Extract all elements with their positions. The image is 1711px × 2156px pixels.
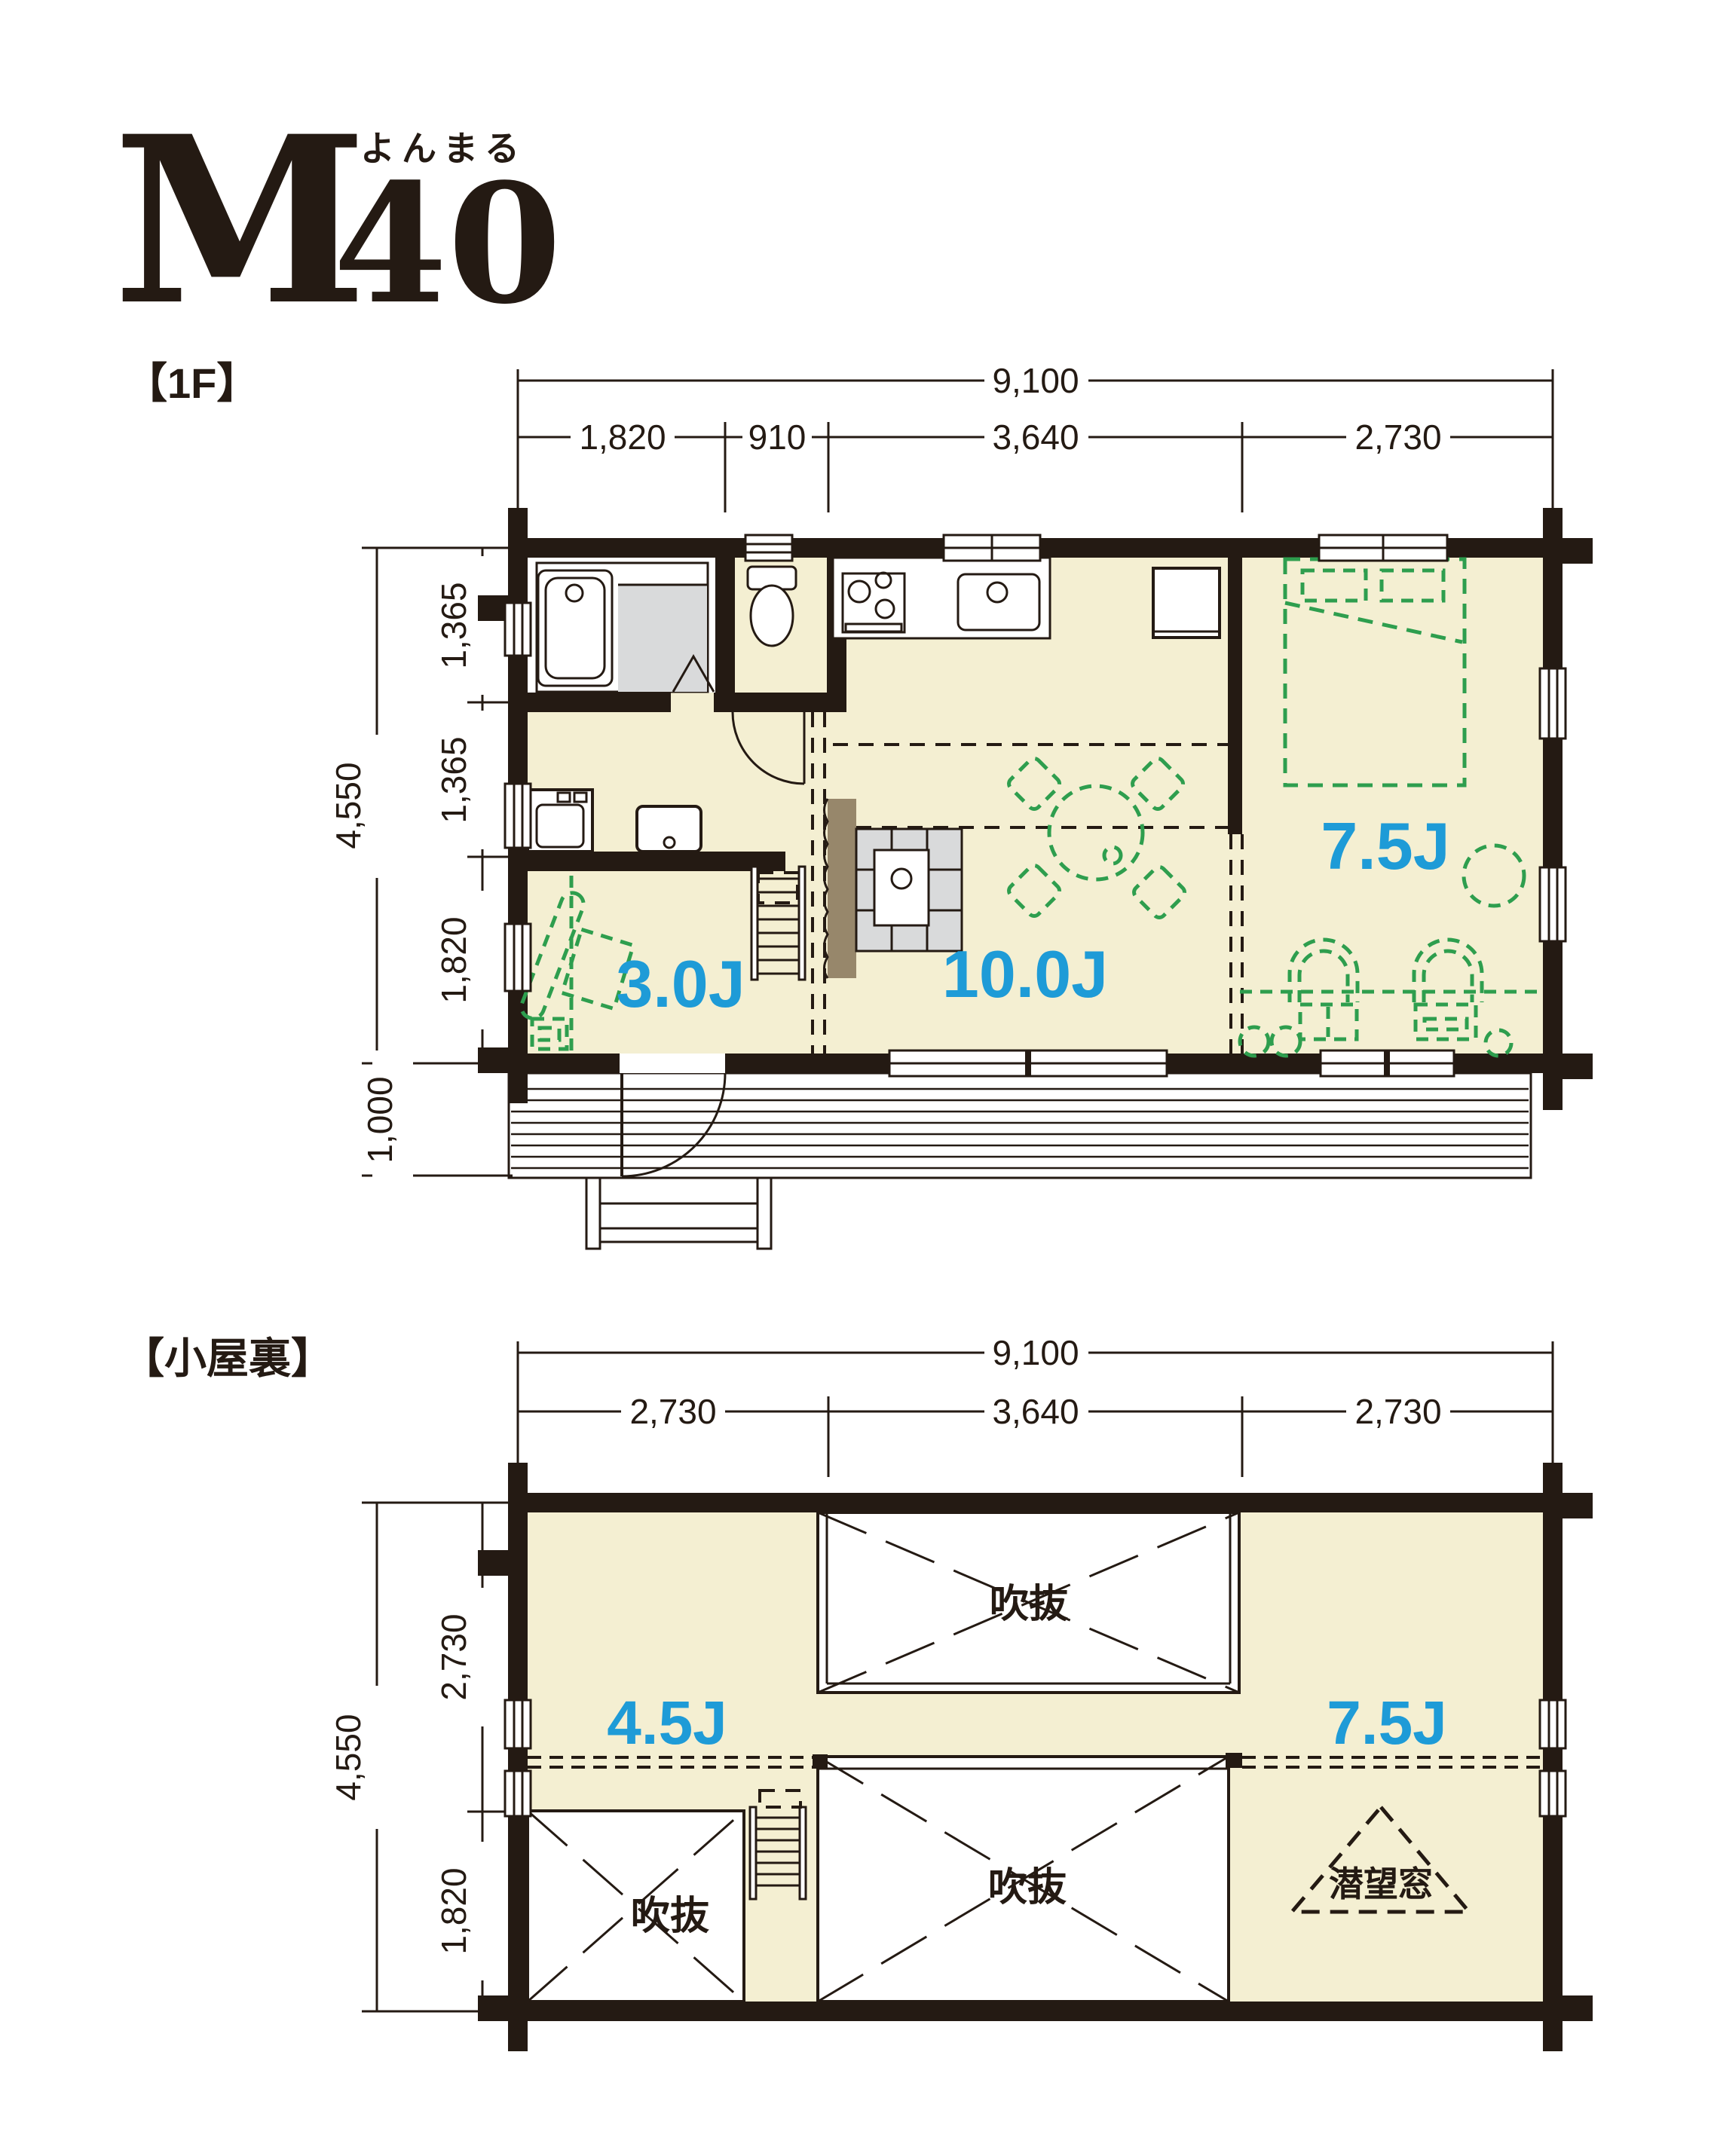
dim-1f-deck: 1,000 xyxy=(360,1076,399,1163)
washbasin xyxy=(637,806,701,852)
room-label-living: 10.0J xyxy=(942,937,1108,1011)
window xyxy=(505,784,531,848)
void-label-bottom-left: 吹抜 xyxy=(631,1895,709,1938)
dim-1f-w2: 910 xyxy=(748,417,807,457)
toilet-bowl xyxy=(751,586,793,646)
chimney-wall xyxy=(825,799,857,978)
bathtub xyxy=(538,570,612,686)
dims-attic-left: 4,550 2,730 1,820 xyxy=(329,1503,513,2011)
periscope-label: 潜望窓 xyxy=(1329,1864,1433,1904)
model-ruby: よんまる xyxy=(360,129,526,168)
deck-steps xyxy=(586,1178,771,1249)
model-letter: M xyxy=(113,86,368,356)
floorplan-drawing: M 40 よんまる 【1F】 9,100 1,820 910 3,640 2,7… xyxy=(0,0,1711,2156)
window xyxy=(889,1050,1167,1076)
window xyxy=(505,603,531,656)
window xyxy=(505,1771,531,1816)
window xyxy=(1540,1700,1566,1748)
window xyxy=(1321,1050,1454,1076)
dim-1f-w4: 2,730 xyxy=(1354,417,1441,457)
deck xyxy=(509,1073,1531,1249)
dim-attic-w1: 2,730 xyxy=(629,1392,716,1431)
washing-machine xyxy=(528,790,592,852)
window xyxy=(1540,1771,1566,1816)
dim-1f-w1: 1,820 xyxy=(579,417,666,457)
dim-attic-total-width: 9,100 xyxy=(992,1333,1079,1372)
dim-attic-w2: 3,640 xyxy=(992,1392,1079,1431)
window xyxy=(505,1700,531,1748)
window xyxy=(944,535,1040,561)
window xyxy=(505,924,531,991)
void-label-bottom-center: 吹抜 xyxy=(988,1866,1067,1910)
wood-stove-hearth xyxy=(856,829,962,951)
room-label-entry: 3.0J xyxy=(616,946,745,1021)
dim-1f-total-width: 9,100 xyxy=(992,361,1079,400)
section-label-1f: 【1F】 xyxy=(125,359,259,407)
void-label-top: 吹抜 xyxy=(990,1583,1068,1626)
window xyxy=(745,535,792,561)
dim-1f-h3: 1,820 xyxy=(434,916,473,1003)
dim-1f-h2: 1,365 xyxy=(434,736,473,823)
room-label-loft-right: 7.5J xyxy=(1327,1689,1447,1757)
model-number: 40 xyxy=(333,148,562,341)
window xyxy=(1540,867,1566,941)
floorplan-page: M 40 よんまる 【1F】 9,100 1,820 910 3,640 2,7… xyxy=(0,0,1711,2156)
window xyxy=(1319,535,1447,561)
dims-1f-left: 4,550 1,365 1,365 1,820 1,000 xyxy=(329,548,513,1189)
entry-door xyxy=(620,1054,725,1176)
section-label-attic: 【小屋裏】 xyxy=(122,1335,333,1382)
dim-attic-h1: 2,730 xyxy=(434,1613,473,1700)
dim-attic-total-height: 4,550 xyxy=(329,1714,368,1800)
dim-1f-w3: 3,640 xyxy=(992,417,1079,457)
floorplan-attic: 潜望窓 xyxy=(478,1463,1593,2051)
floorplan-1f: 3.0J 10.0J 7.5J xyxy=(478,508,1593,1249)
dim-attic-w3: 2,730 xyxy=(1354,1392,1441,1431)
dim-1f-h1: 1,365 xyxy=(434,582,473,668)
model-title: M 40 よんまる xyxy=(113,86,562,356)
bathroom xyxy=(528,558,715,693)
window xyxy=(1540,668,1566,739)
dim-1f-total-height: 4,550 xyxy=(329,762,368,849)
room-label-bedroom: 7.5J xyxy=(1321,809,1449,883)
refrigerator xyxy=(1153,568,1220,638)
dims-1f-top: 9,100 1,820 910 3,640 2,730 xyxy=(518,361,1553,512)
room-label-loft-left: 4.5J xyxy=(607,1689,727,1757)
dim-attic-h2: 1,820 xyxy=(434,1867,473,1954)
dims-attic-top: 9,100 2,730 3,640 2,730 xyxy=(518,1333,1553,1477)
